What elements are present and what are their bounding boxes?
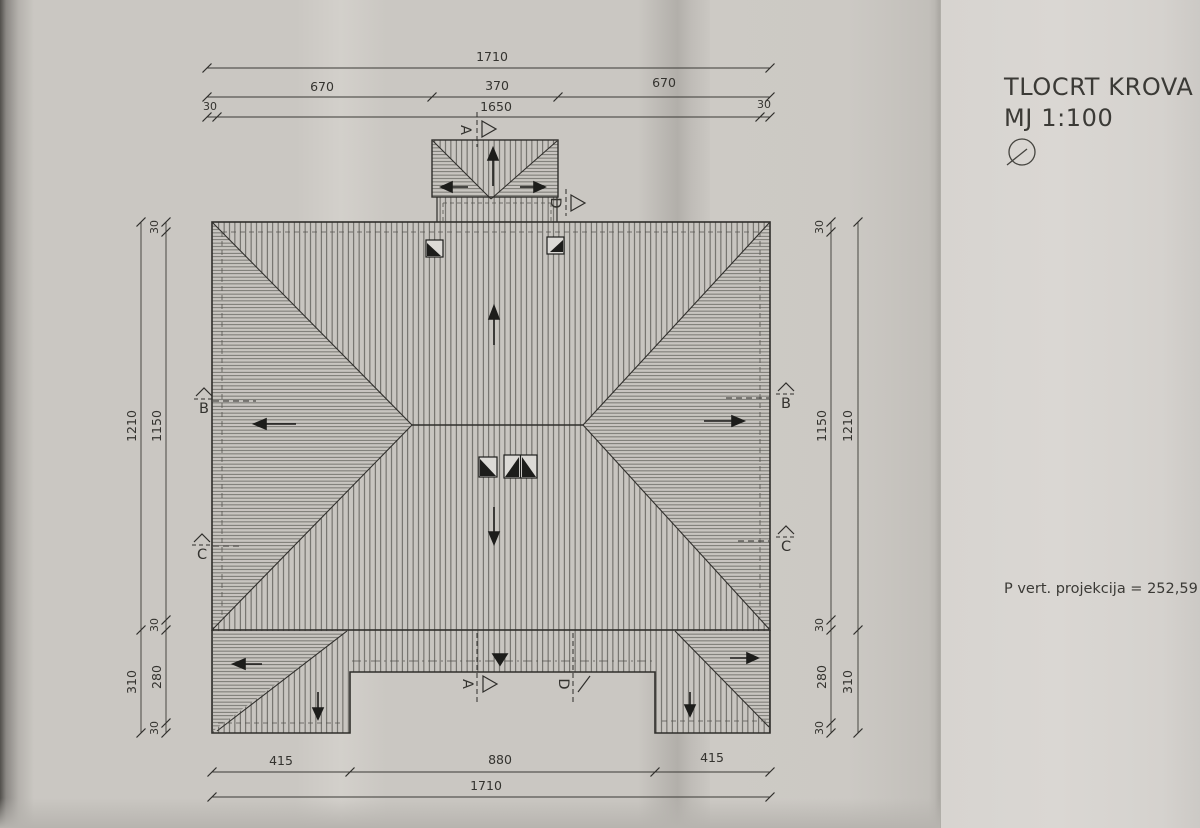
dim-left: 30 [148, 721, 161, 735]
svg-text:D: D [555, 678, 571, 689]
dim-top-seg: 670 [310, 79, 334, 94]
dim-right: 310 [840, 670, 855, 694]
svg-text:C: C [197, 547, 207, 563]
dim-top-inner: 30 [757, 98, 771, 111]
dim-right: 30 [813, 220, 826, 234]
svg-text:C: C [781, 539, 791, 555]
drawing-title: TLOCRT KROVA [1003, 73, 1193, 101]
dim-top-seg: 670 [652, 75, 676, 90]
svg-text:A: A [457, 125, 473, 135]
dim-left: 30 [148, 220, 161, 234]
dim-right: 280 [814, 665, 829, 689]
dim-left: 1150 [149, 410, 164, 442]
dim-top-inner: 1650 [480, 99, 512, 114]
dim-bottom-seg: 880 [488, 752, 512, 767]
dim-left: 1210 [124, 410, 139, 442]
dim-right: 1150 [814, 410, 829, 442]
dim-right: 30 [813, 618, 826, 632]
svg-text:D: D [547, 197, 563, 208]
scanned-roof-plan-page: 1710 670 370 670 30 1650 30 415 880 415 … [0, 0, 1200, 828]
dim-right: 1210 [840, 410, 855, 442]
dim-top-total: 1710 [476, 49, 508, 64]
svg-text:A: A [459, 679, 475, 689]
projection-area-note: P vert. projekcija = 252,59 m [1004, 581, 1200, 597]
dim-top-inner: 30 [203, 100, 217, 113]
roof-planes [212, 140, 770, 733]
north-symbol-icon [1007, 139, 1035, 165]
svg-text:B: B [781, 396, 791, 412]
roof-plan-drawing: 1710 670 370 670 30 1650 30 415 880 415 … [0, 0, 1200, 828]
dim-bottom-seg: 415 [700, 750, 724, 765]
dim-left: 310 [124, 670, 139, 694]
dim-bottom-total: 1710 [470, 778, 502, 793]
dim-bottom-seg: 415 [269, 753, 293, 768]
dim-left: 280 [149, 665, 164, 689]
drawing-scale: MJ 1:100 [1004, 104, 1113, 132]
svg-text:B: B [199, 401, 209, 417]
dim-right: 30 [813, 721, 826, 735]
title-block: TLOCRT KROVA MJ 1:100 P vert. projekcija… [1003, 73, 1200, 597]
dim-left: 30 [148, 618, 161, 632]
dim-top-seg: 370 [485, 78, 509, 93]
